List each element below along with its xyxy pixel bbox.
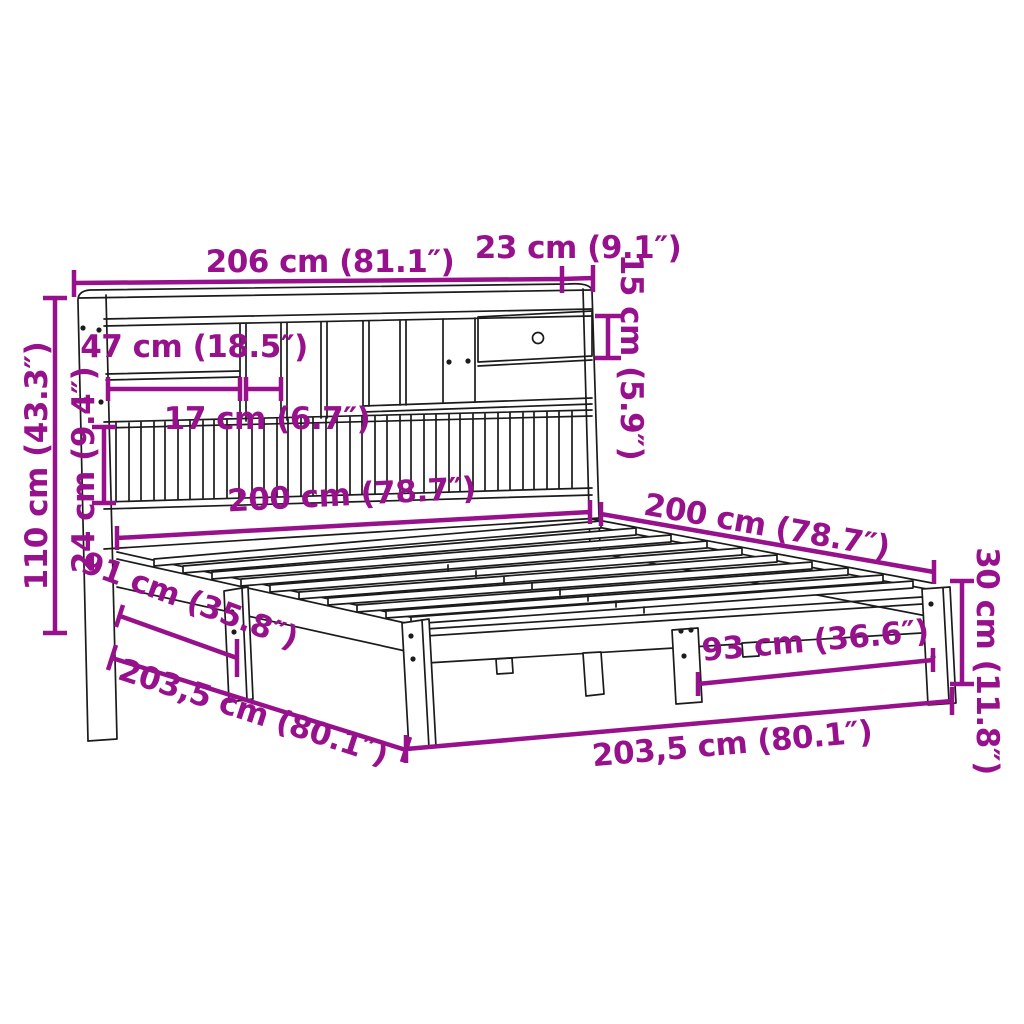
headboard-top-face xyxy=(79,290,591,298)
long-shelf xyxy=(363,398,592,412)
dim-label-headboard-depth: 23 cm (9.1″) xyxy=(475,230,682,266)
dim-label-drawer-height: 15 cm (5.9″) xyxy=(613,254,649,461)
drawer-knob xyxy=(533,333,544,344)
stub-leg xyxy=(496,658,513,674)
left-cubby-shelf xyxy=(106,371,240,380)
dimension-annotations: 206 cm (81.1″) 23 cm (9.1″) 15 cm (5.9″)… xyxy=(19,230,1005,775)
screw-icon xyxy=(928,601,933,606)
dim-headboard-height: 110 cm (43.3″) xyxy=(19,298,67,633)
dim-label-headboard-width: 206 cm (81.1″) xyxy=(206,244,455,280)
dim-label-slat-panel-height: 24 cm (9.4″) xyxy=(66,367,102,574)
dim-label-frame-height: 30 cm (11.8″) xyxy=(969,547,1005,775)
screw-icon xyxy=(465,358,470,363)
dim-label-shelf-width: 47 cm (18.5″) xyxy=(80,329,308,365)
dim-label-frame-length-right: 203,5 cm (80.1″) xyxy=(591,714,874,774)
front-left-leg xyxy=(402,619,436,750)
dim-headboard-depth: 23 cm (9.1″) xyxy=(475,230,682,292)
diagram-canvas: 206 cm (81.1″) 23 cm (9.1″) 15 cm (5.9″)… xyxy=(0,0,1024,1024)
dim-drawer-height: 15 cm (5.9″) xyxy=(595,254,649,461)
dim-line xyxy=(246,377,281,401)
top-shelf xyxy=(104,309,592,326)
stub-leg xyxy=(583,652,604,696)
dim-foot-leg-spacing: 93 cm (36.6″) xyxy=(698,613,933,696)
product-dimension-diagram: 206 cm (81.1″) 23 cm (9.1″) 15 cm (5.9″)… xyxy=(0,0,1024,1024)
screw-icon xyxy=(410,656,415,661)
screw-icon xyxy=(688,627,693,632)
screw-icon xyxy=(681,653,686,658)
dim-line xyxy=(108,377,240,401)
dim-label-compartment-width: 17 cm (6.7″) xyxy=(164,401,371,437)
dim-compartment-width: 17 cm (6.7″) xyxy=(164,377,371,437)
dim-label-headboard-height: 110 cm (43.3″) xyxy=(19,342,55,591)
dim-frame-height: 30 cm (11.8″) xyxy=(950,547,1005,775)
screw-icon xyxy=(678,628,683,633)
dim-label-frame-length-left: 203,5 cm (80.1″) xyxy=(114,652,392,773)
drawer xyxy=(478,311,592,366)
screw-icon xyxy=(408,633,413,638)
dim-line xyxy=(562,265,593,292)
dim-label-foot-leg-spacing: 93 cm (36.6″) xyxy=(700,613,930,669)
screw-icon xyxy=(446,359,451,364)
dim-frame-length-left: 203,5 cm (80.1″) xyxy=(108,645,410,773)
